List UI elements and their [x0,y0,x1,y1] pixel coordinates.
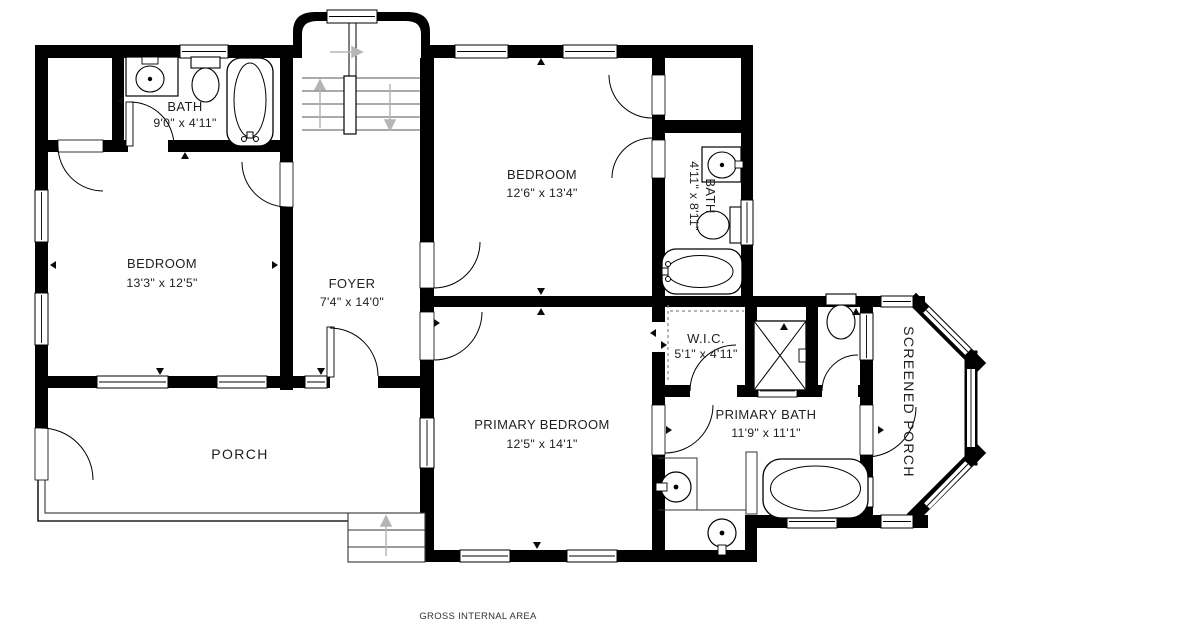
room-dimensions: 5'1" x 4'11" [674,347,737,361]
shower-icon [754,321,806,390]
toilet-icon [826,294,856,339]
window [97,376,168,388]
window [217,376,267,388]
window [563,45,617,58]
window [35,293,48,345]
room-screened-porch: SCREENED PORCH [901,326,917,478]
room-label: SCREENED PORCH [901,326,917,478]
bathtub-icon [662,249,742,294]
window [35,190,48,242]
window [567,550,617,562]
room-label: PRIMARY BATH [716,407,817,422]
window [305,376,327,388]
window [327,10,377,23]
window [455,45,508,58]
room-label: PRIMARY BEDROOM [474,417,610,432]
room-dimensions: 7'4" x 14'0" [320,295,384,309]
room-dimensions: 11'9" x 11'1" [731,426,801,440]
room-label: BATH [703,178,718,213]
room-porch: PORCH [211,446,269,462]
room-dimensions: 4'11" x 8'11" [687,161,701,231]
room-dimensions: 12'6" x 13'4" [506,186,577,200]
room-dimensions: 13'3" x 12'5" [126,276,197,290]
window [420,418,434,468]
sink-icon [702,147,743,182]
bathtub-icon [763,459,868,518]
bathtub-icon [227,58,273,146]
toilet-icon [191,57,220,102]
window [881,296,913,307]
floor-plan-page: BATH 9'0" x 4'11" BEDROOM 13'3" x 12'5" … [0,0,1200,620]
room-label: BATH [167,99,202,114]
background [0,0,1200,620]
gross-internal-area-label: GROSS INTERNAL AREA [419,611,537,620]
window [860,313,873,360]
sink-icon [126,57,178,96]
room-label: PORCH [211,446,269,462]
room-label: BEDROOM [507,167,577,182]
room-label: FOYER [329,276,376,291]
room-dimensions: 9'0" x 4'11" [153,116,216,130]
room-dimensions: 12'5" x 14'1" [506,437,577,451]
entry-steps-icon [348,513,425,562]
window [741,200,753,245]
room-label: BEDROOM [127,256,197,271]
window [460,550,510,562]
window [180,45,228,58]
room-label: W.I.C. [687,331,725,346]
window [881,515,913,528]
floor-plan-canvas: BATH 9'0" x 4'11" BEDROOM 13'3" x 12'5" … [0,0,1200,620]
